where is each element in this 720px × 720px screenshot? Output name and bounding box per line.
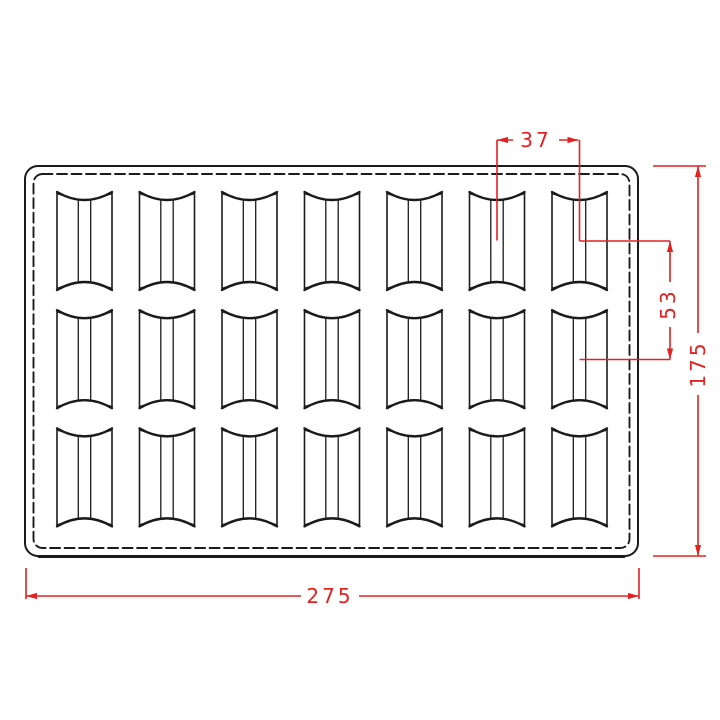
tray-outer-outline	[25, 166, 638, 556]
dimension-pitch-x-label: 37	[520, 128, 551, 152]
arrow-right-icon	[628, 593, 639, 599]
dimension-width: 275	[26, 568, 639, 608]
technical-drawing-canvas: 37 53 175	[0, 0, 720, 720]
dimension-width-label: 275	[306, 584, 353, 608]
dimension-height: 175	[653, 166, 710, 556]
arrow-up-icon	[695, 166, 701, 177]
drawing-page: 37 53 175	[0, 0, 720, 720]
arrow-up-icon	[667, 241, 673, 252]
tray	[25, 166, 638, 557]
arrow-right-icon	[568, 137, 579, 143]
arrow-left-icon	[497, 137, 508, 143]
dimension-height-label: 175	[686, 340, 710, 387]
arrow-down-icon	[667, 349, 673, 360]
arrow-down-icon	[695, 545, 701, 556]
arrow-left-icon	[26, 593, 37, 599]
dimension-pitch-y-label: 53	[656, 288, 680, 319]
